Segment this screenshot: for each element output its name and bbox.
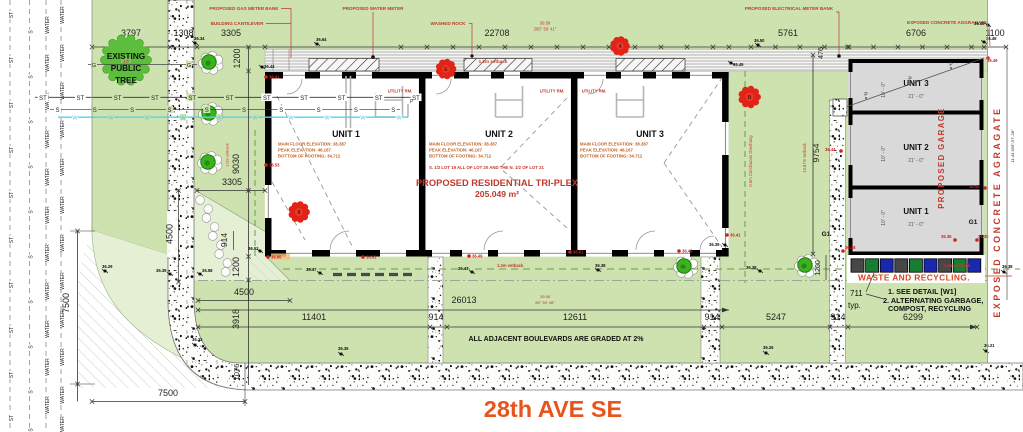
svg-text:W: W xyxy=(108,116,114,122)
svg-text:E: E xyxy=(444,67,448,73)
svg-text:EXISTING: EXISTING xyxy=(107,52,145,61)
svg-text:7500: 7500 xyxy=(158,388,178,398)
svg-text:1.2m setback: 1.2m setback xyxy=(497,263,524,268)
svg-text:W: W xyxy=(288,116,294,122)
svg-text:9030: 9030 xyxy=(231,154,241,174)
svg-text:WATER: WATER xyxy=(45,358,51,376)
svg-text:11.44 359°-57'-28": 11.44 359°-57'-28" xyxy=(1010,129,1015,162)
svg-text:WATER: WATER xyxy=(45,168,51,186)
svg-text:36.38: 36.38 xyxy=(1002,264,1013,269)
svg-text:6706: 6706 xyxy=(906,28,926,38)
svg-text:WATER: WATER xyxy=(60,416,66,432)
svg-text:39.58: 39.58 xyxy=(540,21,551,26)
svg-text:ST: ST xyxy=(9,12,15,18)
svg-text:205.049 m²: 205.049 m² xyxy=(475,189,519,199)
svg-text:36.44: 36.44 xyxy=(264,64,275,69)
svg-text:36.35: 36.35 xyxy=(338,346,349,351)
svg-text:UTILITY RM.: UTILITY RM. xyxy=(582,89,607,94)
svg-text:COMPOST, RECYCLING: COMPOST, RECYCLING xyxy=(888,304,971,313)
svg-text:9754: 9754 xyxy=(811,143,821,162)
svg-text:36.49: 36.49 xyxy=(974,21,985,26)
svg-text:PEAK ELEVATION: 46.167: PEAK ELEVATION: 46.167 xyxy=(278,148,331,153)
svg-text:4500: 4500 xyxy=(165,224,175,244)
svg-text:ST: ST xyxy=(76,96,84,102)
svg-text:ST: ST xyxy=(9,327,15,333)
svg-text:UTILITY RM.: UTILITY RM. xyxy=(388,89,413,94)
svg-text:3305: 3305 xyxy=(221,28,241,38)
svg-text:0.6m Continuous Overhang: 0.6m Continuous Overhang xyxy=(748,135,753,187)
svg-text:ST: ST xyxy=(375,96,383,102)
svg-text:WATER: WATER xyxy=(45,16,51,34)
svg-text:UNIT 3: UNIT 3 xyxy=(903,79,929,88)
svg-text:UTILITY RM.: UTILITY RM. xyxy=(540,89,565,94)
svg-text:S: S xyxy=(242,108,246,114)
svg-text:13.87m setback: 13.87m setback xyxy=(802,142,807,172)
svg-text:12611: 12611 xyxy=(563,312,587,322)
svg-text:MAIN FLOOR ELEVATION: 38.387: MAIN FLOOR ELEVATION: 38.387 xyxy=(429,142,498,147)
svg-text:ST: ST xyxy=(263,96,271,102)
svg-text:G: G xyxy=(187,63,191,69)
svg-text:S. 1/2 LOT 19 ALL OF LOT 20 A: S. 1/2 LOT 19 ALL OF LOT 20 AND THE N. 1… xyxy=(429,165,545,170)
svg-text:36.49: 36.49 xyxy=(682,249,693,254)
svg-text:ST: ST xyxy=(9,102,15,108)
svg-text:36.39: 36.39 xyxy=(709,242,720,247)
svg-text:WATER: WATER xyxy=(60,234,66,252)
svg-text:36.50: 36.50 xyxy=(754,38,765,43)
svg-text:1. SEE DETAIL [W1]: 1. SEE DETAIL [W1] xyxy=(888,287,957,296)
svg-text:1200: 1200 xyxy=(815,260,822,276)
svg-text:G: G xyxy=(92,63,96,69)
svg-text:10' - 0": 10' - 0" xyxy=(881,146,887,162)
svg-text:711: 711 xyxy=(850,289,863,298)
svg-text:WASHED ROCK: WASHED ROCK xyxy=(431,21,467,26)
svg-text:ST: ST xyxy=(338,96,346,102)
svg-text:MAIN FLOOR ELEVATION: 38.387: MAIN FLOOR ELEVATION: 38.387 xyxy=(580,142,649,147)
svg-text:ST: ST xyxy=(9,237,15,243)
svg-text:UNIT 1: UNIT 1 xyxy=(903,207,929,216)
svg-text:ST: ST xyxy=(9,147,15,153)
svg-text:36.51: 36.51 xyxy=(573,250,584,255)
svg-text:W: W xyxy=(396,116,402,122)
svg-text:ST: ST xyxy=(9,192,15,198)
svg-text:ST: ST xyxy=(9,372,15,378)
svg-text:21' - 0": 21' - 0" xyxy=(908,158,924,164)
svg-text:28th AVE SE: 28th AVE SE xyxy=(484,396,622,422)
svg-text:W: W xyxy=(72,116,78,122)
svg-text:ST: ST xyxy=(300,96,308,102)
svg-text:5247: 5247 xyxy=(766,312,786,322)
svg-text:W: W xyxy=(180,116,186,122)
svg-text:36.44: 36.44 xyxy=(825,147,836,152)
svg-text:ST: ST xyxy=(39,96,47,102)
svg-text:W: W xyxy=(252,116,258,122)
svg-text:21' - 0": 21' - 0" xyxy=(908,222,924,228)
svg-text:B: B xyxy=(748,95,752,101)
svg-text:10' - 0": 10' - 0" xyxy=(881,210,887,226)
svg-text:EXPOSED CONCRETE AGRAGATE: EXPOSED CONCRETE AGRAGATE xyxy=(992,106,1002,317)
svg-text:S: S xyxy=(391,108,395,114)
svg-text:WATER: WATER xyxy=(60,158,66,176)
svg-text:4500: 4500 xyxy=(234,287,254,297)
svg-text:1200: 1200 xyxy=(231,257,241,277)
svg-text:WATER: WATER xyxy=(60,6,66,24)
svg-text:UNIT 3: UNIT 3 xyxy=(636,129,664,139)
svg-text:36.41: 36.41 xyxy=(730,233,741,238)
svg-text:1200: 1200 xyxy=(232,48,242,68)
svg-text:BOTTOM OF FOOTING: 34.712: BOTTOM OF FOOTING: 34.712 xyxy=(278,154,341,159)
svg-text:ST: ST xyxy=(226,96,234,102)
svg-text:1076: 1076 xyxy=(232,364,241,381)
svg-text:36.38: 36.38 xyxy=(595,263,606,268)
svg-text:36.58: 36.58 xyxy=(202,268,213,273)
svg-text:ST: ST xyxy=(9,57,15,63)
svg-text:36.53: 36.53 xyxy=(269,163,280,168)
svg-text:W: W xyxy=(144,116,150,122)
svg-text:36.38: 36.38 xyxy=(845,245,856,250)
svg-text:36.49: 36.49 xyxy=(987,58,998,63)
svg-text:UNIT 2: UNIT 2 xyxy=(903,143,929,152)
svg-text:36.64: 36.64 xyxy=(316,37,327,42)
svg-text:ST: ST xyxy=(9,282,15,288)
svg-text:PEAK ELEVATION: 46.167: PEAK ELEVATION: 46.167 xyxy=(580,148,633,153)
svg-text:S: S xyxy=(317,108,321,114)
svg-text:476: 476 xyxy=(818,47,825,59)
svg-text:W: W xyxy=(216,116,222,122)
svg-text:BUILDING CANTILEVER: BUILDING CANTILEVER xyxy=(211,21,265,26)
svg-text:WATER: WATER xyxy=(45,54,51,72)
svg-text:S: S xyxy=(354,108,358,114)
svg-text:36.49: 36.49 xyxy=(733,62,744,67)
svg-text:36.39: 36.39 xyxy=(156,268,167,273)
svg-text:BOTTOM OF FOOTING: 34.712: BOTTOM OF FOOTING: 34.712 xyxy=(429,154,492,159)
svg-text:WASTE AND RECYCLING.: WASTE AND RECYCLING. xyxy=(858,273,970,283)
svg-text:S: S xyxy=(130,108,134,114)
svg-text:36.47: 36.47 xyxy=(458,266,469,271)
svg-text:36.21: 36.21 xyxy=(984,343,995,348)
svg-text:W: W xyxy=(360,116,366,122)
svg-text:22708: 22708 xyxy=(484,28,509,38)
svg-text:1.0m setback: 1.0m setback xyxy=(225,143,230,167)
svg-text:WATER: WATER xyxy=(60,196,66,214)
svg-text:BOTTOM OF FOOTING: 34.712: BOTTOM OF FOOTING: 34.712 xyxy=(580,154,643,159)
svg-text:6299: 6299 xyxy=(903,312,923,322)
svg-text:914: 914 xyxy=(704,312,719,322)
svg-text:MAIN FLOOR ELEVATION: 38.387: MAIN FLOOR ELEVATION: 38.387 xyxy=(278,142,347,147)
svg-text:914: 914 xyxy=(219,233,229,247)
svg-text:36.45: 36.45 xyxy=(969,184,980,189)
svg-text:26013: 26013 xyxy=(451,295,476,305)
svg-text:10' - 0": 10' - 0" xyxy=(881,82,887,98)
svg-text:ST: ST xyxy=(188,96,196,102)
svg-text:S: S xyxy=(205,108,209,114)
svg-text:8: 8 xyxy=(297,210,300,216)
svg-text:UNIT 1: UNIT 1 xyxy=(332,129,360,139)
svg-text:36.51: 36.51 xyxy=(366,255,377,260)
svg-text:36.35: 36.35 xyxy=(941,234,952,239)
svg-text:1.2m setback: 1.2m setback xyxy=(944,263,971,268)
svg-text:7500: 7500 xyxy=(61,293,71,313)
svg-text:89° 59' 48": 89° 59' 48" xyxy=(535,300,555,305)
svg-text:914: 914 xyxy=(428,312,443,322)
svg-text:S: S xyxy=(93,108,97,114)
svg-text:36.47: 36.47 xyxy=(306,267,317,272)
svg-text:21' - 0": 21' - 0" xyxy=(908,94,924,100)
svg-text:PUBLIC: PUBLIC xyxy=(111,64,142,73)
svg-text:UNIT 2: UNIT 2 xyxy=(485,129,513,139)
svg-text:1308: 1308 xyxy=(173,28,193,38)
svg-text:36.38: 36.38 xyxy=(746,265,757,270)
svg-text:265° 59' 41": 265° 59' 41" xyxy=(534,27,557,32)
svg-text:WATER: WATER xyxy=(45,206,51,224)
svg-text:36.41: 36.41 xyxy=(269,75,280,80)
svg-text:ST: ST xyxy=(412,96,420,102)
svg-text:36.52: 36.52 xyxy=(248,246,259,251)
svg-text:PROPOSED ELECTRICAL METER BANK: PROPOSED ELECTRICAL METER BANK xyxy=(745,6,834,11)
svg-text:ST: ST xyxy=(114,96,122,102)
svg-text:ALL ADJACENT BOULEVARDS ARE GR: ALL ADJACENT BOULEVARDS ARE GRADED AT 2% xyxy=(468,336,644,343)
svg-text:S: S xyxy=(167,108,171,114)
svg-text:914: 914 xyxy=(830,312,845,322)
svg-text:WATER: WATER xyxy=(60,272,66,290)
svg-text:36.34: 36.34 xyxy=(194,36,205,41)
svg-text:WATER: WATER xyxy=(60,386,66,404)
svg-text:S: S xyxy=(55,108,59,114)
svg-text:5761: 5761 xyxy=(778,28,798,38)
svg-text:typ.: typ. xyxy=(848,301,861,310)
svg-text:ST: ST xyxy=(151,96,159,102)
svg-text:3918: 3918 xyxy=(231,309,241,329)
svg-text:36.49: 36.49 xyxy=(472,254,483,259)
svg-text:PROPOSED WATER METER: PROPOSED WATER METER xyxy=(343,6,405,11)
svg-text:WATER: WATER xyxy=(60,348,66,366)
svg-text:WATER: WATER xyxy=(45,282,51,300)
svg-text:11401: 11401 xyxy=(302,312,326,322)
svg-text:G1: G1 xyxy=(969,219,978,226)
svg-text:WATER: WATER xyxy=(45,244,51,262)
svg-text:PROPOSED RESIDENTIAL TRI-PLEX: PROPOSED RESIDENTIAL TRI-PLEX xyxy=(416,178,579,188)
svg-text:36.60: 36.60 xyxy=(271,255,282,260)
svg-text:PROPOSED GAS METER BANK: PROPOSED GAS METER BANK xyxy=(209,6,279,11)
svg-text:1.2m setback: 1.2m setback xyxy=(479,59,508,64)
svg-text:PEAK ELEVATION: 46.167: PEAK ELEVATION: 46.167 xyxy=(429,148,482,153)
svg-text:WATER: WATER xyxy=(60,44,66,62)
svg-text:WATER: WATER xyxy=(45,396,51,414)
svg-text:WATER: WATER xyxy=(45,320,51,338)
svg-text:WATER: WATER xyxy=(45,130,51,148)
svg-text:ST: ST xyxy=(9,415,15,421)
svg-text:3305: 3305 xyxy=(222,177,242,187)
svg-text:S: S xyxy=(279,108,283,114)
svg-text:W: W xyxy=(324,116,330,122)
svg-text:TREE: TREE xyxy=(115,76,137,85)
svg-text:36.26: 36.26 xyxy=(763,345,774,350)
svg-text:36.29: 36.29 xyxy=(102,264,113,269)
svg-text:WATER: WATER xyxy=(60,120,66,138)
svg-text:39.58: 39.58 xyxy=(540,294,551,299)
svg-text:36.32: 36.32 xyxy=(192,337,203,342)
svg-text:PROPOSED GARAGE: PROPOSED GARAGE xyxy=(937,107,946,209)
